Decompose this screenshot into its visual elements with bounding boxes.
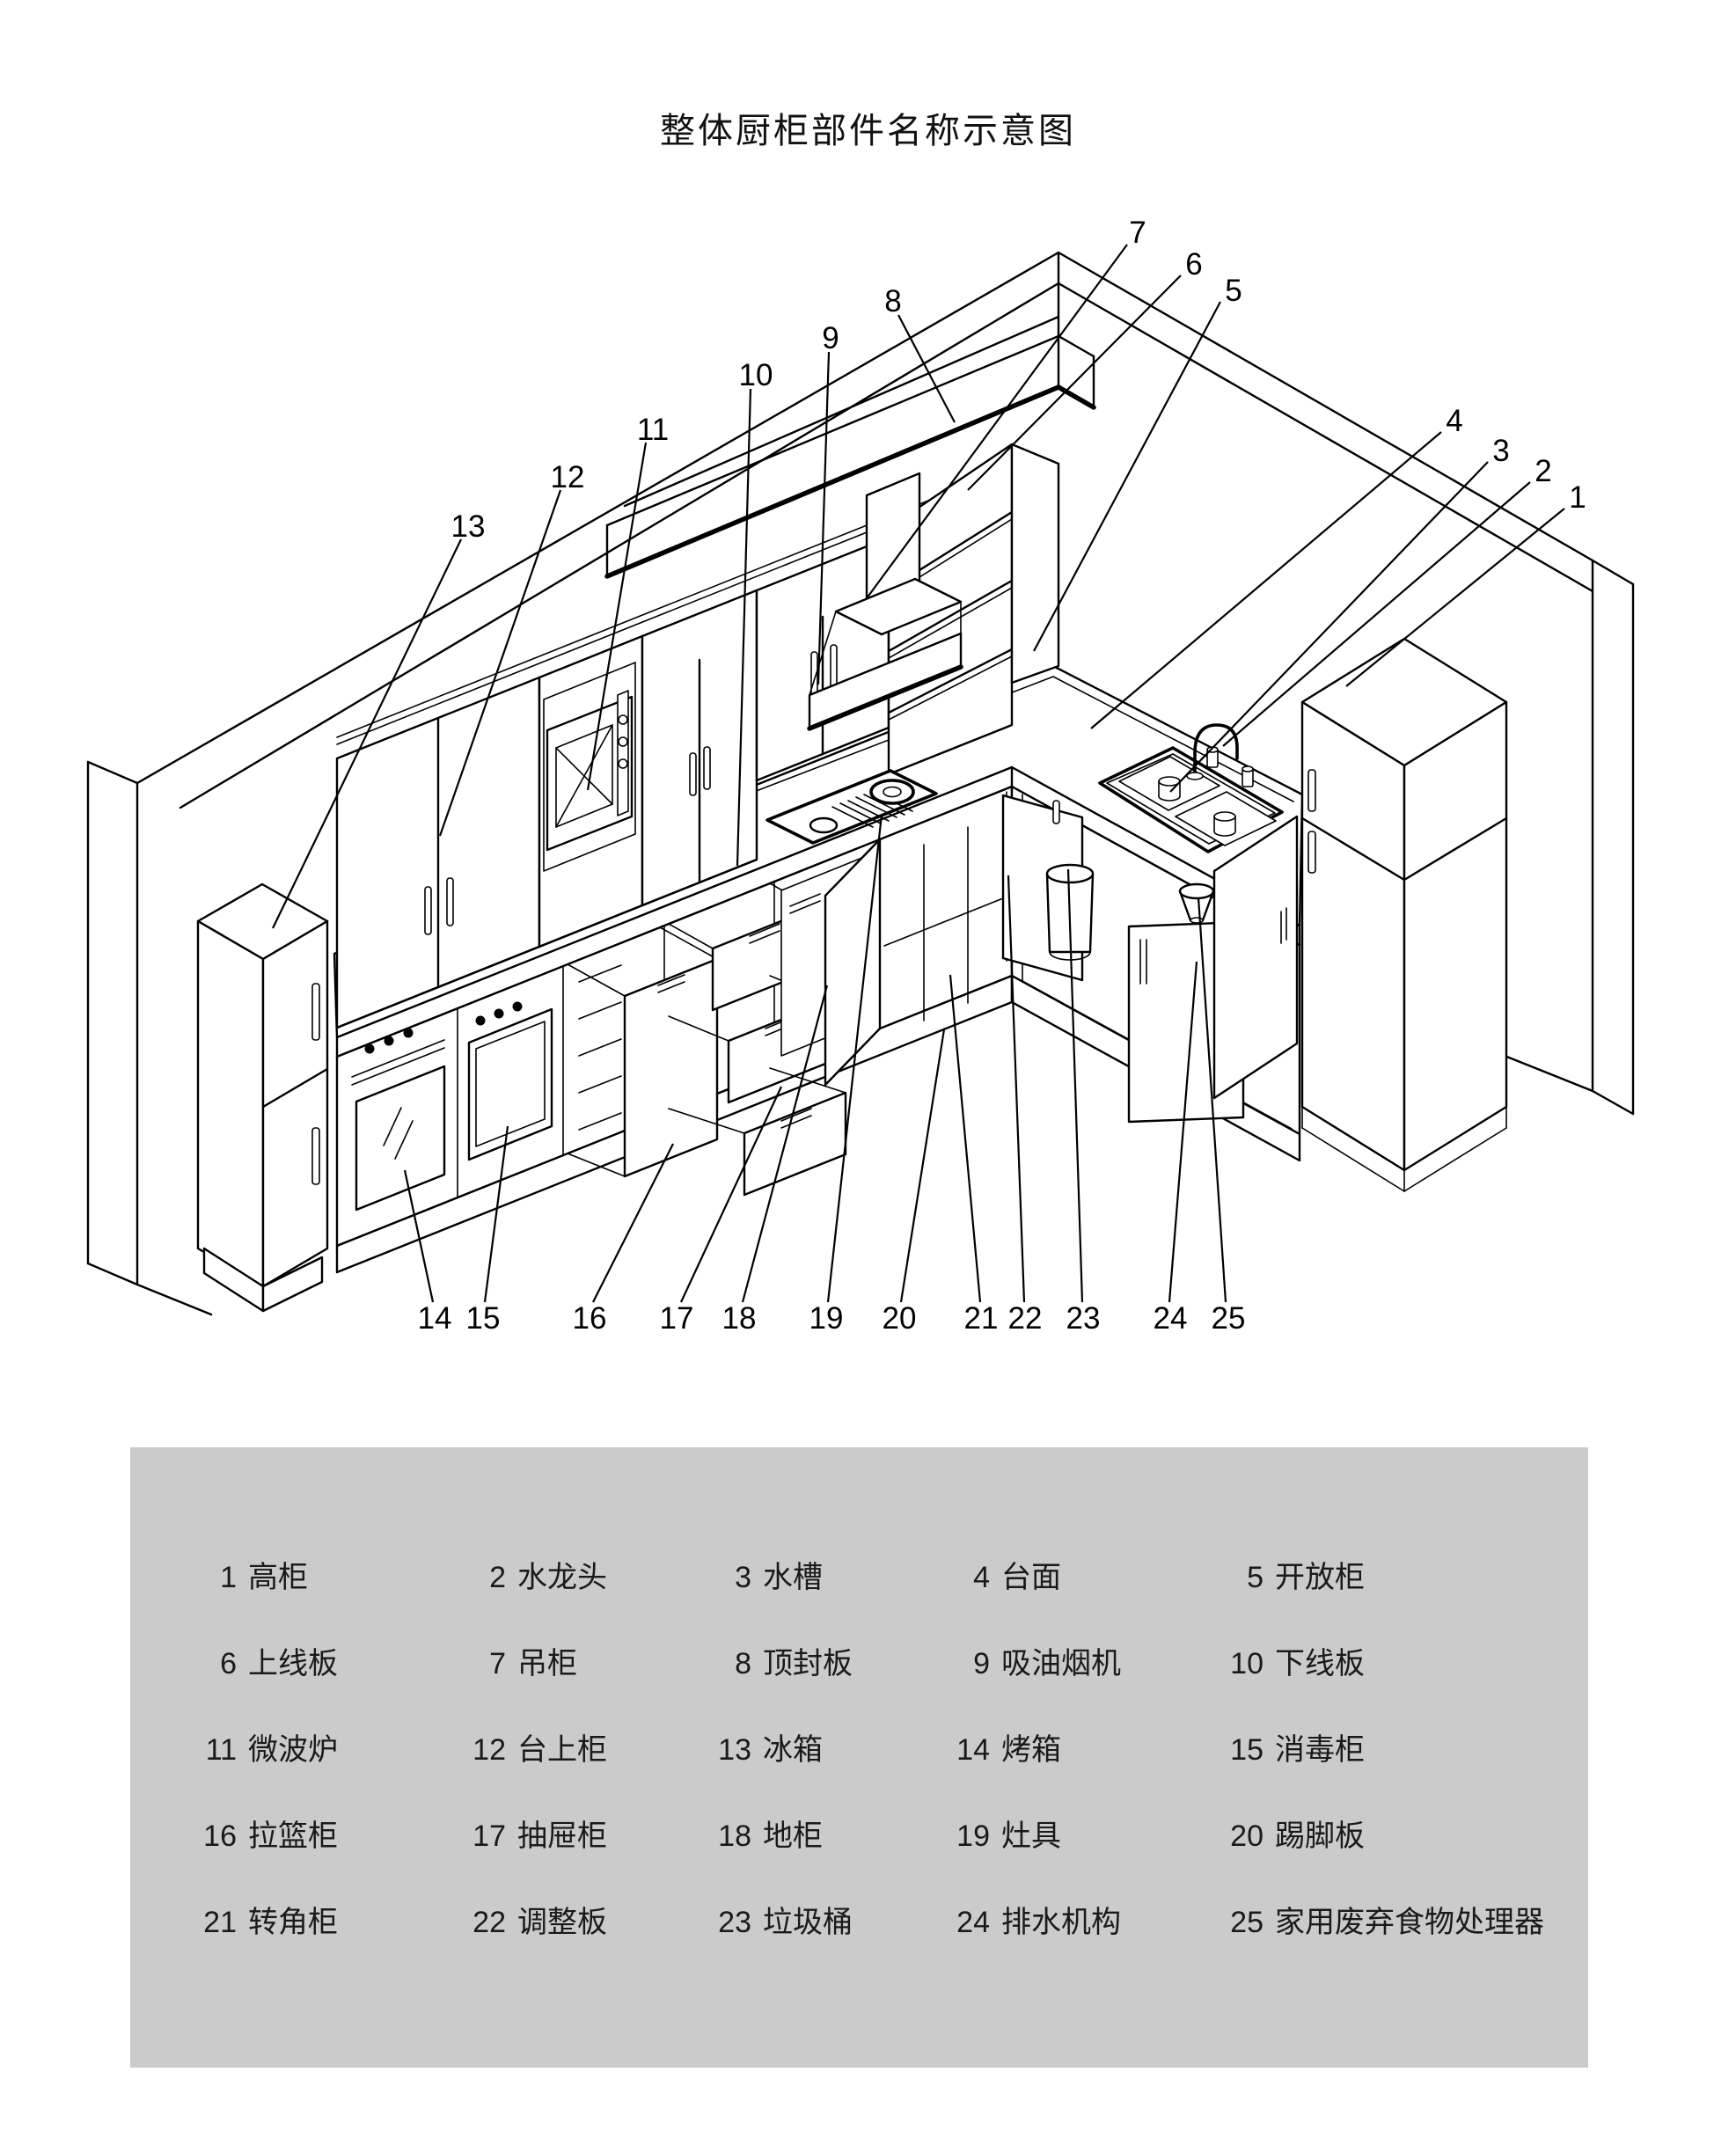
legend-item-number: 24	[935, 1906, 990, 1940]
leader-line-20	[901, 1029, 944, 1302]
callout-number-5: 5	[1225, 274, 1242, 308]
legend-item-12: 12台上柜	[451, 1725, 607, 1768]
callout-number-1: 1	[1569, 480, 1586, 515]
leader-line-1	[1346, 509, 1564, 686]
callout-number-17: 17	[660, 1301, 694, 1336]
callout-number-8: 8	[884, 284, 901, 319]
legend-item-number: 3	[697, 1561, 751, 1595]
legend-item-number: 18	[697, 1819, 751, 1854]
legend-item-3: 3水槽	[697, 1553, 823, 1596]
legend-item-number: 1	[182, 1561, 237, 1595]
legend-item-19: 19灶具	[935, 1812, 1061, 1855]
callout-number-7: 7	[1129, 216, 1146, 250]
legend-item-label: 冰箱	[763, 1733, 823, 1767]
legend-item-number: 9	[935, 1647, 990, 1681]
legend-item-25: 25家用废弃食物处理器	[1209, 1898, 1544, 1941]
legend-box: 1高柜2水龙头3水槽4台面5开放柜6上线板7吊柜8顶封板9吸油烟机10下线板11…	[130, 1447, 1588, 2068]
legend-item-24: 24排水机构	[935, 1898, 1121, 1941]
leader-line-21	[950, 975, 980, 1302]
legend-item-label: 抽屉柜	[517, 1819, 607, 1853]
callout-number-20: 20	[883, 1301, 917, 1336]
callout-number-18: 18	[722, 1301, 757, 1336]
legend-item-number: 13	[697, 1733, 751, 1768]
legend-item-18: 18地柜	[697, 1812, 823, 1855]
legend-item-4: 4台面	[935, 1553, 1061, 1596]
leader-line-5	[1034, 302, 1220, 651]
legend-item-number: 12	[451, 1733, 506, 1768]
legend-item-number: 21	[182, 1906, 237, 1940]
legend-item-20: 20踢脚板	[1209, 1812, 1365, 1855]
legend-item-number: 2	[451, 1561, 506, 1595]
callout-number-24: 24	[1154, 1301, 1188, 1336]
legend-item-number: 6	[182, 1647, 237, 1681]
legend-item-label: 吸油烟机	[1001, 1647, 1121, 1680]
legend-item-5: 5开放柜	[1209, 1553, 1365, 1596]
legend-item-label: 吊柜	[517, 1647, 577, 1680]
legend-item-label: 踢脚板	[1275, 1819, 1365, 1853]
callout-number-11: 11	[637, 413, 669, 447]
legend-item-14: 14烤箱	[935, 1725, 1061, 1768]
leader-line-8	[898, 315, 955, 422]
callout-number-9: 9	[822, 321, 839, 355]
legend-item-label: 顶封板	[763, 1647, 853, 1680]
legend-item-17: 17抽屉柜	[451, 1812, 607, 1855]
legend-item-label: 水龙头	[517, 1561, 607, 1594]
legend-item-label: 开放柜	[1275, 1561, 1365, 1594]
legend-item-21: 21转角柜	[182, 1898, 338, 1941]
callout-number-14: 14	[418, 1301, 452, 1336]
legend-item-11: 11微波炉	[182, 1725, 338, 1768]
legend-item-label: 家用废弃食物处理器	[1275, 1906, 1544, 1939]
legend-item-label: 灶具	[1001, 1819, 1061, 1853]
legend-item-9: 9吸油烟机	[935, 1639, 1121, 1682]
legend-item-10: 10下线板	[1209, 1639, 1365, 1682]
legend-item-22: 22调整板	[451, 1898, 607, 1941]
legend-item-1: 1高柜	[182, 1553, 308, 1596]
tall-cabinet	[1302, 639, 1506, 1191]
legend-item-number: 17	[451, 1819, 506, 1854]
legend-item-8: 8顶封板	[697, 1639, 853, 1682]
legend-item-label: 拉篮柜	[248, 1819, 338, 1853]
callout-number-6: 6	[1185, 247, 1202, 282]
callout-number-25: 25	[1212, 1301, 1246, 1336]
legend-item-number: 10	[1209, 1647, 1264, 1681]
callout-number-22: 22	[1008, 1301, 1043, 1336]
legend-item-label: 调整板	[517, 1906, 607, 1939]
callout-number-10: 10	[739, 358, 773, 392]
legend-item-6: 6上线板	[182, 1639, 338, 1682]
legend-item-label: 垃圾桶	[763, 1906, 853, 1939]
legend-item-23: 23垃圾桶	[697, 1898, 853, 1941]
refrigerator	[198, 884, 327, 1311]
legend-item-label: 上线板	[248, 1647, 338, 1680]
legend-item-label: 微波炉	[248, 1733, 338, 1767]
callout-number-23: 23	[1066, 1301, 1101, 1336]
callout-number-3: 3	[1492, 434, 1509, 468]
legend-item-2: 2水龙头	[451, 1553, 607, 1596]
legend-item-label: 地柜	[763, 1819, 823, 1853]
callout-number-19: 19	[809, 1301, 844, 1336]
legend-item-15: 15消毒柜	[1209, 1725, 1365, 1768]
callout-number-2: 2	[1535, 454, 1551, 488]
legend-item-number: 25	[1209, 1906, 1264, 1940]
legend-item-label: 消毒柜	[1275, 1733, 1365, 1767]
legend-item-number: 16	[182, 1819, 237, 1854]
legend-item-number: 14	[935, 1733, 990, 1768]
legend-item-16: 16拉篮柜	[182, 1812, 338, 1855]
legend-item-number: 4	[935, 1561, 990, 1595]
legend-item-number: 23	[697, 1906, 751, 1940]
legend-item-label: 高柜	[248, 1561, 308, 1594]
legend-item-number: 19	[935, 1819, 990, 1854]
legend-item-number: 7	[451, 1647, 506, 1681]
legend-item-label: 转角柜	[248, 1906, 338, 1939]
callout-number-13: 13	[451, 509, 486, 544]
legend-item-label: 台上柜	[517, 1733, 607, 1767]
legend-item-number: 15	[1209, 1733, 1264, 1768]
legend-item-label: 烤箱	[1001, 1733, 1061, 1767]
legend-item-13: 13冰箱	[697, 1725, 823, 1768]
leader-line-6	[968, 275, 1181, 490]
legend-item-number: 5	[1209, 1561, 1264, 1595]
callout-number-15: 15	[466, 1301, 501, 1336]
legend-item-number: 20	[1209, 1819, 1264, 1854]
legend-item-label: 台面	[1001, 1561, 1061, 1594]
callout-number-21: 21	[964, 1301, 999, 1336]
legend-item-number: 11	[182, 1733, 237, 1768]
legend-item-7: 7吊柜	[451, 1639, 577, 1682]
callout-number-12: 12	[551, 460, 585, 494]
callout-number-4: 4	[1446, 404, 1462, 438]
legend-item-label: 下线板	[1275, 1647, 1365, 1680]
legend-item-label: 水槽	[763, 1561, 823, 1594]
legend-item-number: 8	[697, 1647, 751, 1681]
legend-item-number: 22	[451, 1906, 506, 1940]
callout-number-16: 16	[573, 1301, 607, 1336]
legend-item-label: 排水机构	[1001, 1906, 1121, 1939]
page: 整体厨柜部件名称示意图	[0, 0, 1736, 2138]
